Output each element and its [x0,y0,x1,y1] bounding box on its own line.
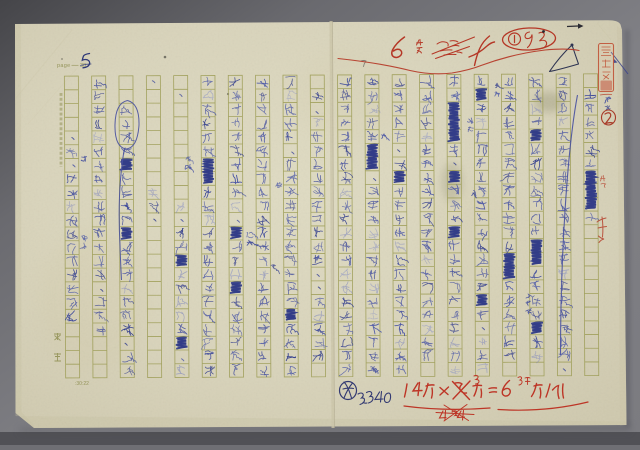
svg-text:page: page [57,63,70,69]
svg-text::30:22: :30:22 [75,381,89,387]
